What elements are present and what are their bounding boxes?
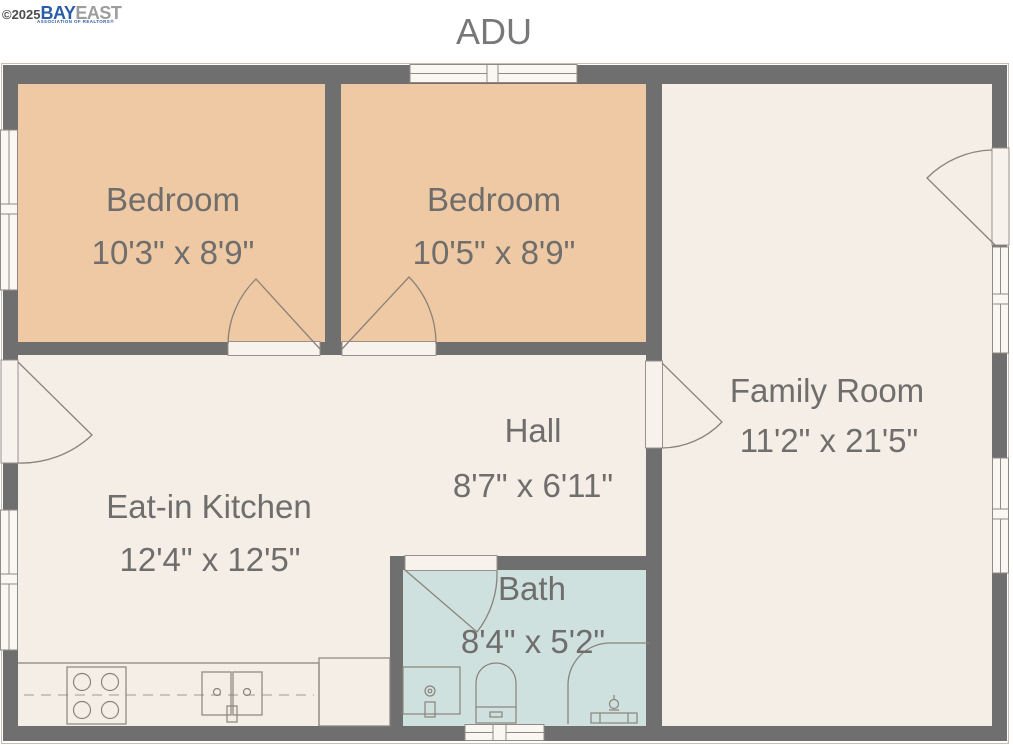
door-opening-family-entry <box>992 148 1009 245</box>
eat-in-kitchen-label: Eat-in Kitchen <box>49 490 369 525</box>
kitchen-sink-icon <box>202 672 262 722</box>
bath-fixtures <box>403 663 637 723</box>
door-opening-kitchen-entry <box>1 360 18 463</box>
hall-dimensions: 8'7" x 6'11" <box>373 469 693 504</box>
eat-in-kitchen-dimensions: 12'4" x 12'5" <box>50 543 370 578</box>
bathroom-sink-icon <box>591 695 637 723</box>
window-family-right-lower <box>993 458 1009 573</box>
bath-dimensions: 8'4" x 5'2" <box>373 625 693 660</box>
bath-label: Bath <box>372 572 692 607</box>
window-bedroom-2-top <box>410 65 577 83</box>
floor-plan: ADU Bedroom 10'3" x 8'9" Bedroom 10'5" x… <box>0 0 1013 745</box>
door-swing-bedroom-2 <box>342 277 436 349</box>
bedroom-1-label: Bedroom <box>13 183 333 218</box>
shower-icon <box>403 667 460 717</box>
door-swing-kitchen-entry <box>18 362 92 463</box>
window-bath-bottom <box>465 725 544 741</box>
hall-label: Hall <box>373 414 693 449</box>
door-opening-bedroom-1 <box>228 342 320 356</box>
bedroom-1-dimensions: 10'3" x 8'9" <box>13 236 333 271</box>
door-swing-bedroom-1 <box>228 279 320 349</box>
family-room-dimensions: 11'2" x 21'5" <box>669 424 989 459</box>
watermark: ©2025BAYEAST ASSOCIATION OF REALTORS® <box>2 4 121 23</box>
bedroom-2-label: Bedroom <box>334 183 654 218</box>
door-swing-family-entry <box>927 150 995 245</box>
family-room-label: Family Room <box>667 374 987 409</box>
window-kitchen-left <box>1 510 18 650</box>
page-title: ADU <box>334 12 654 52</box>
door-opening-bedroom-2 <box>342 342 436 356</box>
window-family-right-upper <box>993 247 1009 353</box>
brand-tagline: ASSOCIATION OF REALTORS® <box>37 20 114 25</box>
copyright-text: ©2025 <box>2 7 41 22</box>
toilet-icon <box>476 663 516 723</box>
door-opening-bath <box>405 556 497 571</box>
kitchen-fixtures <box>18 658 390 726</box>
bedroom-2-dimensions: 10'5" x 8'9" <box>334 236 654 271</box>
kitchen-counter-return <box>319 658 390 726</box>
